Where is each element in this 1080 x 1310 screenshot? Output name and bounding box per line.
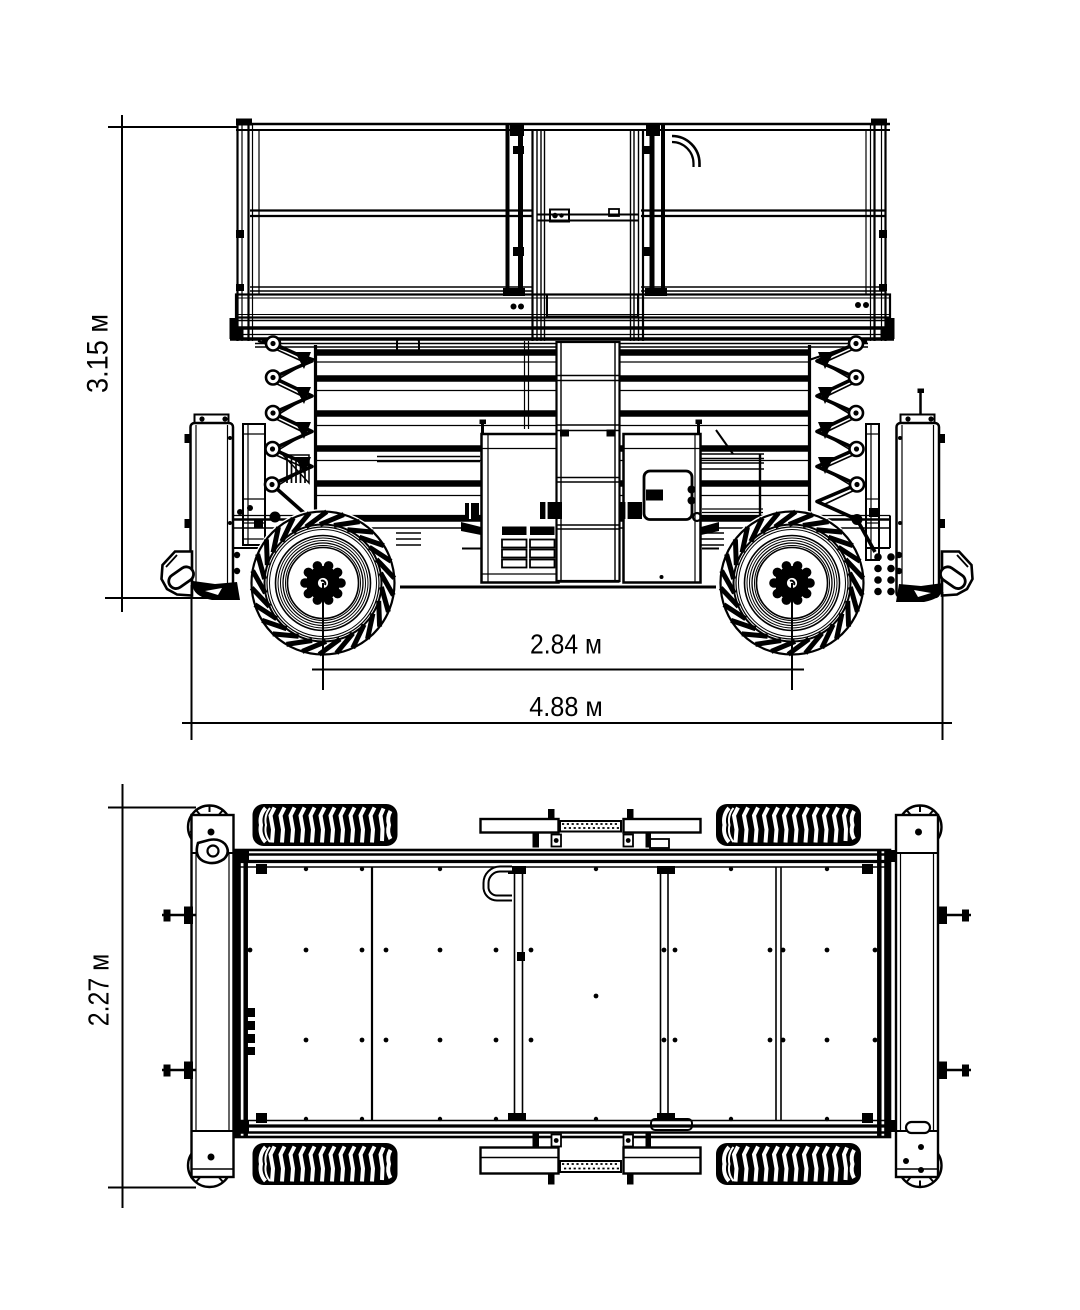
svg-text:2.84 м: 2.84 м <box>530 629 602 660</box>
svg-text:3.15 м: 3.15 м <box>82 314 115 393</box>
svg-text:4.88 м: 4.88 м <box>529 691 603 722</box>
svg-text:2.27 м: 2.27 м <box>84 954 116 1027</box>
